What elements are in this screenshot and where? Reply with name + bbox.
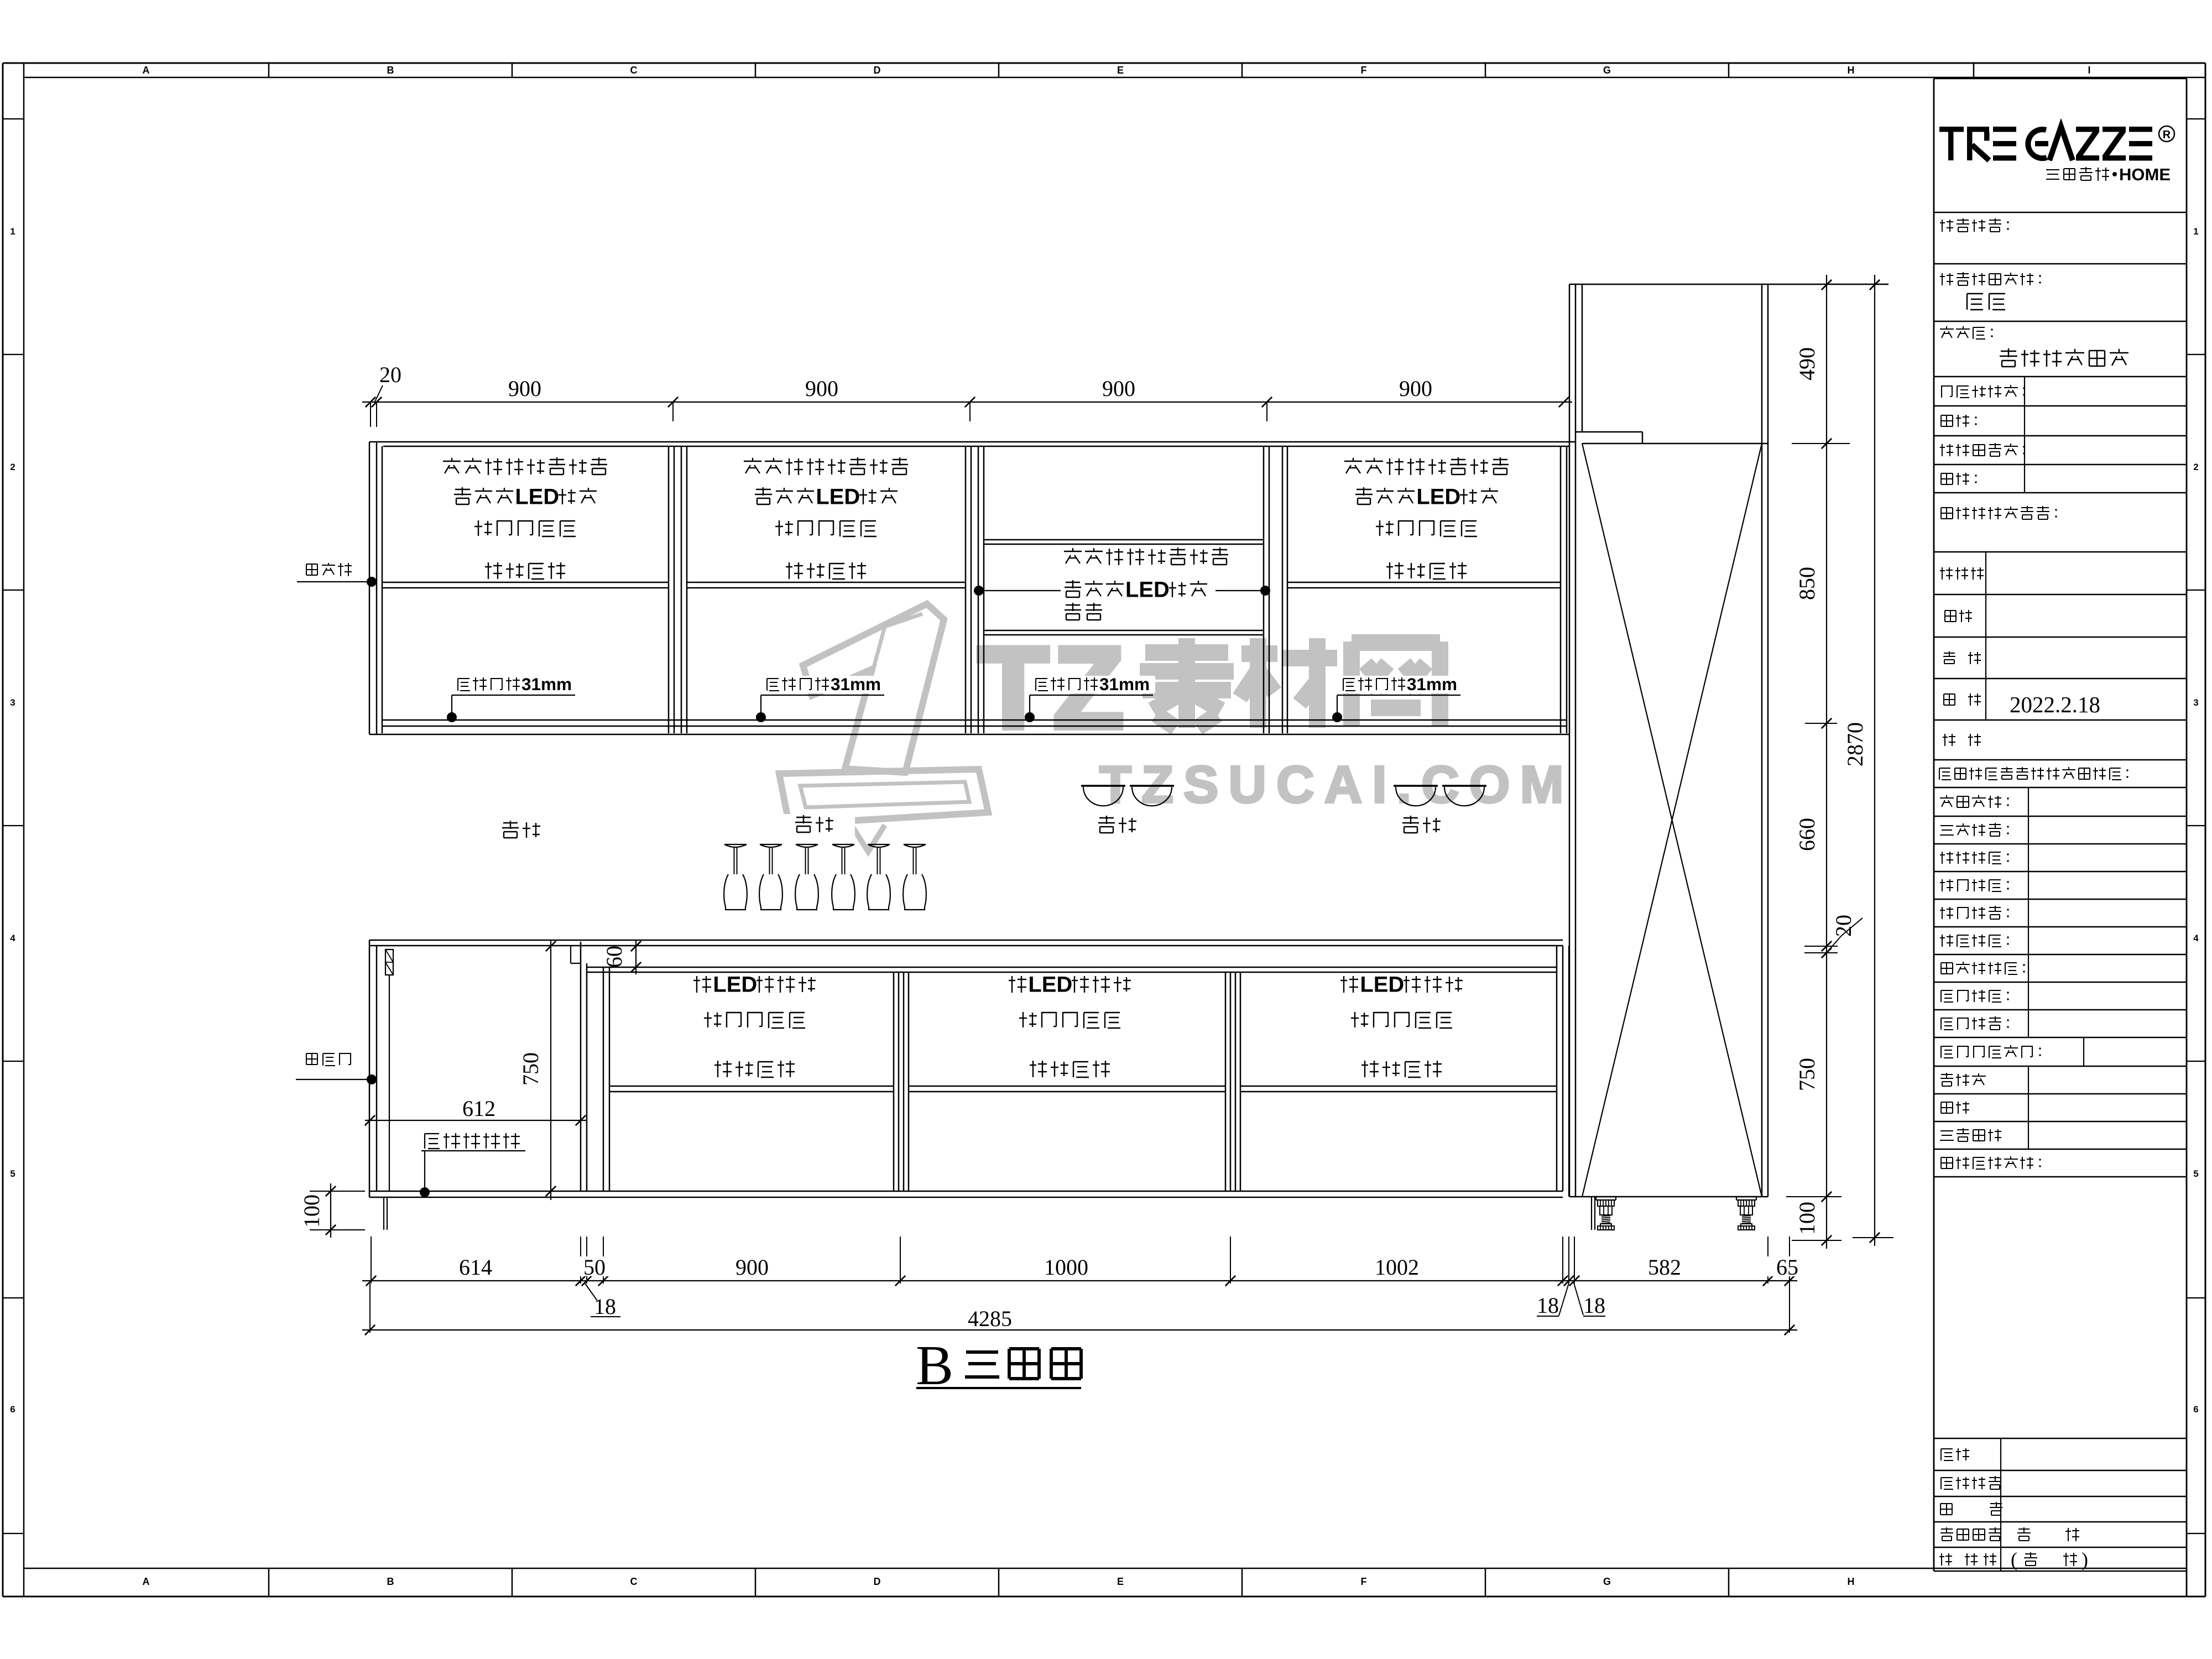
svg-text:E: E xyxy=(1117,1576,1124,1587)
svg-text:6: 6 xyxy=(10,1404,15,1415)
svg-text:1000: 1000 xyxy=(1044,1255,1088,1280)
svg-text:F: F xyxy=(1361,65,1367,76)
svg-text:3: 3 xyxy=(10,697,15,708)
svg-text:2: 2 xyxy=(10,462,15,472)
svg-text:TZSUCAI.COM: TZSUCAI.COM xyxy=(1099,755,1574,814)
svg-text:(: ( xyxy=(2011,1548,2017,1571)
svg-text:1002: 1002 xyxy=(1375,1255,1419,1280)
svg-text:A: A xyxy=(143,65,150,76)
svg-text:31mm: 31mm xyxy=(1099,674,1150,694)
svg-text:18: 18 xyxy=(594,1294,616,1319)
svg-text:18: 18 xyxy=(1583,1293,1605,1318)
svg-text:4: 4 xyxy=(10,933,15,943)
svg-text:I: I xyxy=(2088,65,2090,76)
svg-text:900: 900 xyxy=(1102,376,1135,401)
svg-text:750: 750 xyxy=(1794,1058,1819,1091)
svg-text:1: 1 xyxy=(10,226,15,237)
svg-text:31mm: 31mm xyxy=(1407,674,1457,694)
svg-text:LED: LED xyxy=(1125,578,1170,602)
svg-text:65: 65 xyxy=(1776,1255,1798,1280)
svg-text:E: E xyxy=(1117,65,1124,76)
svg-text:4285: 4285 xyxy=(968,1306,1012,1331)
svg-text:2022.2.18: 2022.2.18 xyxy=(2010,692,2100,717)
svg-text:60: 60 xyxy=(602,946,627,968)
svg-text:LED: LED xyxy=(1028,973,1072,997)
svg-text:750: 750 xyxy=(518,1052,543,1086)
svg-text:LED: LED xyxy=(1360,973,1404,997)
svg-text:2870: 2870 xyxy=(1843,722,1867,766)
svg-text:20: 20 xyxy=(379,362,401,387)
svg-text:R: R xyxy=(2163,129,2171,141)
svg-text:1: 1 xyxy=(2193,226,2198,237)
svg-text:H: H xyxy=(1848,1576,1855,1587)
svg-text:G: G xyxy=(1603,65,1611,76)
svg-text:D: D xyxy=(874,65,881,76)
svg-text:490: 490 xyxy=(1794,347,1819,380)
svg-text:18: 18 xyxy=(1537,1293,1559,1318)
svg-text:660: 660 xyxy=(1794,818,1819,851)
svg-text:850: 850 xyxy=(1794,567,1819,600)
svg-text:900: 900 xyxy=(805,376,838,401)
svg-text:LED: LED xyxy=(713,973,757,997)
svg-text:900: 900 xyxy=(1399,376,1432,401)
svg-text:C: C xyxy=(630,65,638,76)
svg-text:G: G xyxy=(1603,1576,1611,1587)
svg-text:A: A xyxy=(143,1576,150,1587)
svg-text:6: 6 xyxy=(2193,1404,2198,1415)
svg-text:4: 4 xyxy=(2193,933,2199,943)
svg-text:31mm: 31mm xyxy=(831,674,881,694)
svg-text:612: 612 xyxy=(462,1096,495,1121)
svg-text:F: F xyxy=(1361,1576,1367,1587)
svg-text:100: 100 xyxy=(299,1194,324,1228)
svg-text:582: 582 xyxy=(1648,1255,1681,1280)
svg-text:LED: LED xyxy=(816,485,860,509)
svg-text:LED: LED xyxy=(515,485,559,509)
svg-text:B: B xyxy=(387,1576,394,1587)
svg-text:LED: LED xyxy=(1416,485,1460,509)
svg-text:HOME: HOME xyxy=(2119,165,2171,184)
svg-text:3: 3 xyxy=(2193,697,2198,708)
svg-text:2: 2 xyxy=(2193,462,2198,472)
svg-text:C: C xyxy=(630,1576,638,1587)
svg-text:D: D xyxy=(874,1576,881,1587)
svg-text:B: B xyxy=(387,65,394,76)
svg-text:31mm: 31mm xyxy=(521,674,572,694)
svg-text:H: H xyxy=(1848,65,1855,76)
svg-text:): ) xyxy=(2081,1548,2088,1571)
svg-text:50: 50 xyxy=(583,1255,606,1280)
svg-text:5: 5 xyxy=(2193,1168,2198,1179)
svg-text:614: 614 xyxy=(459,1255,492,1280)
svg-text:900: 900 xyxy=(735,1255,769,1280)
svg-text:5: 5 xyxy=(10,1168,15,1179)
svg-text:900: 900 xyxy=(508,376,541,401)
svg-text:100: 100 xyxy=(1794,1202,1819,1235)
